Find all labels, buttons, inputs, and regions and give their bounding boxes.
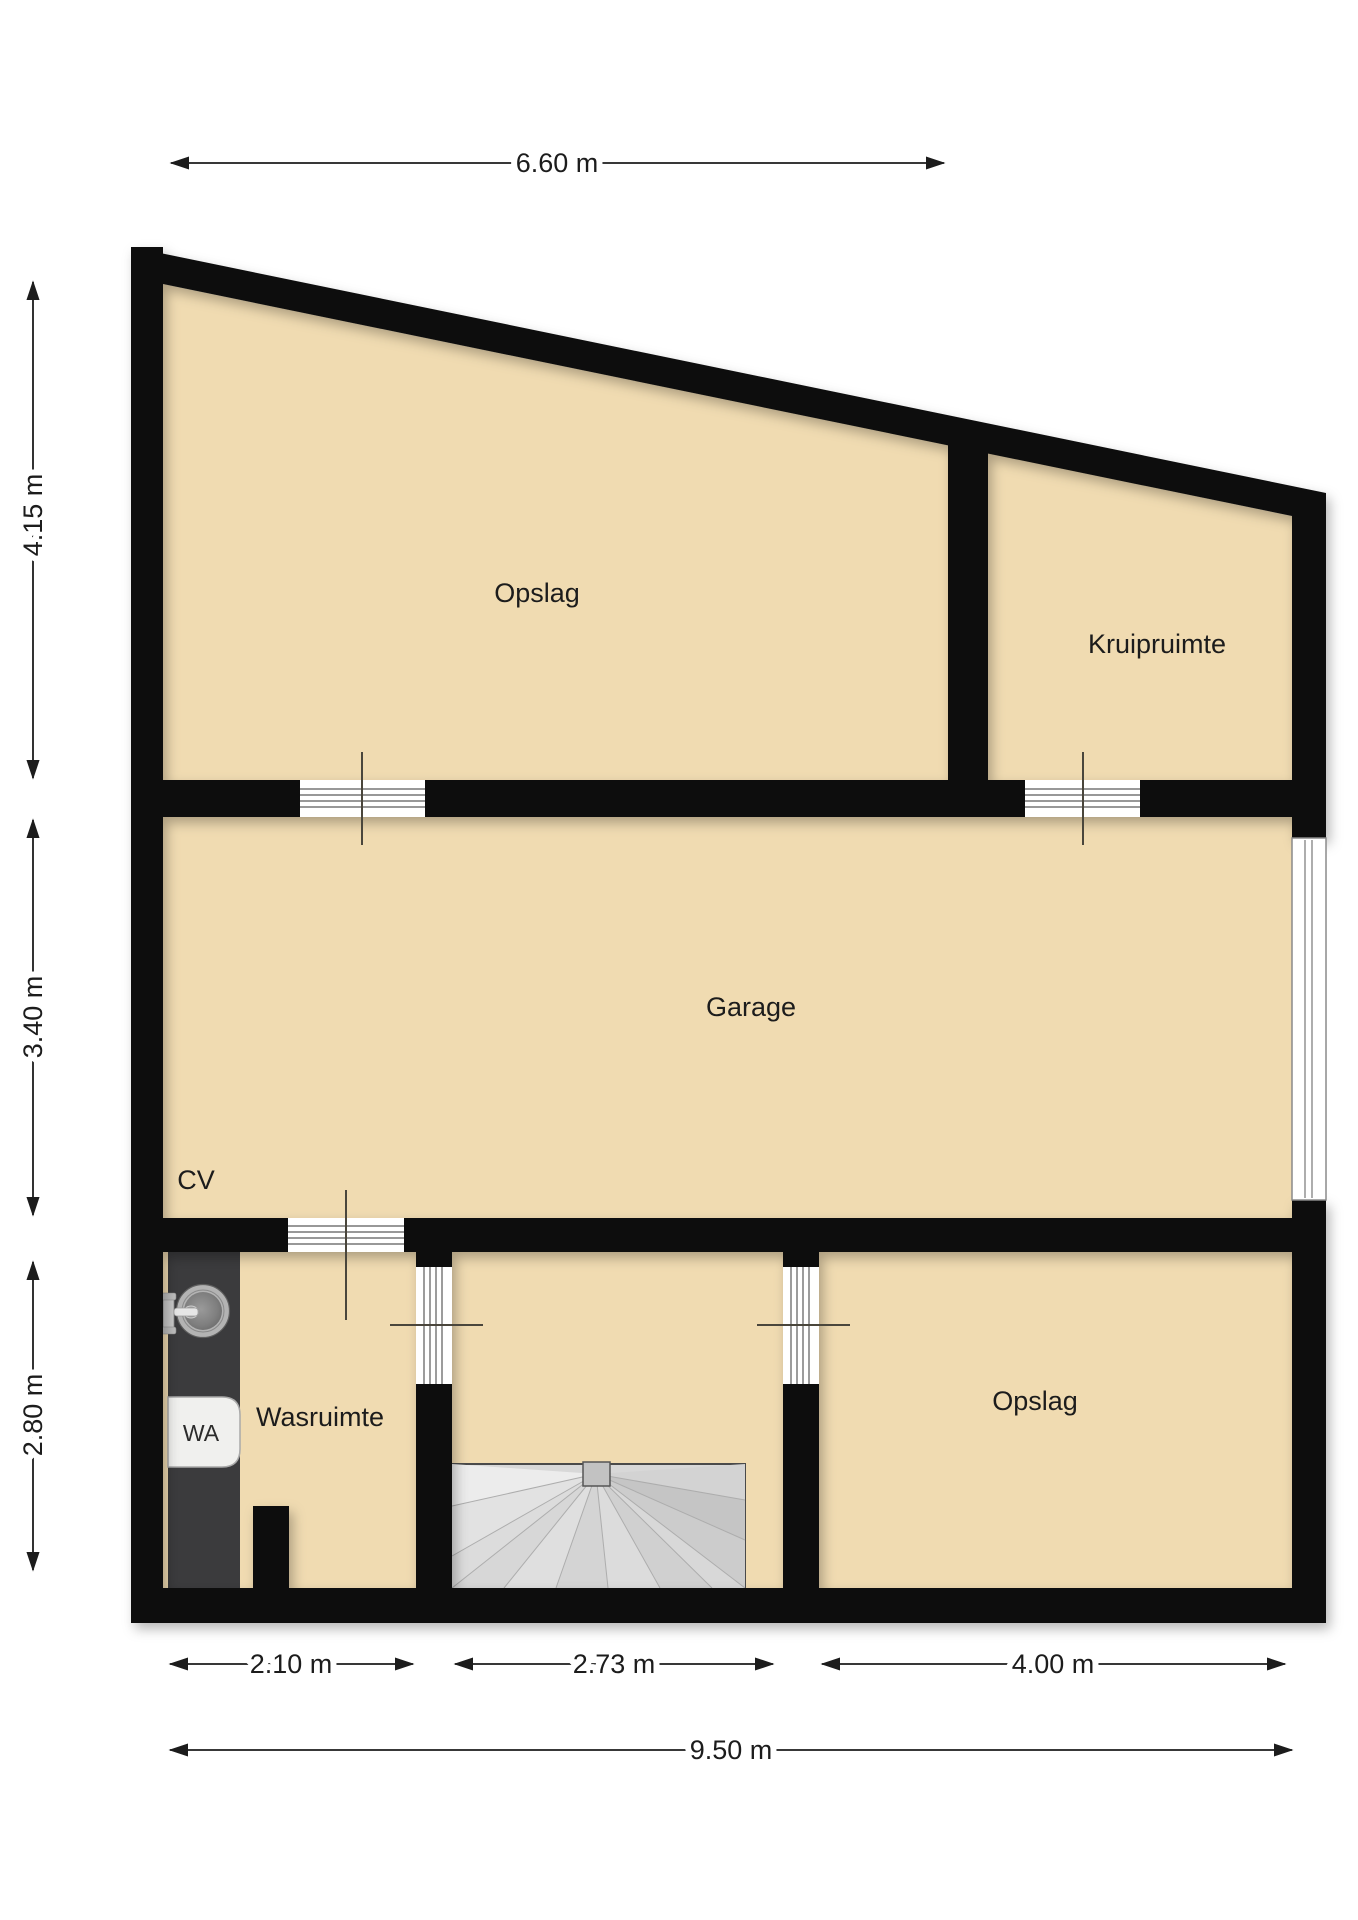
wall-right-upper bbox=[1292, 493, 1326, 838]
dim-left-middle: 3.40 m bbox=[18, 820, 48, 1215]
wall-opslag-kruipruimte bbox=[948, 430, 988, 782]
dim-top-width: 6.60 m bbox=[171, 148, 944, 178]
opslag-bottom-floor bbox=[819, 1250, 1292, 1590]
garage-floor bbox=[163, 810, 1292, 1255]
dim-left-top-label: 4.15 m bbox=[18, 474, 48, 557]
cv-label: CV bbox=[177, 1165, 215, 1195]
kruipruimte-label: Kruipruimte bbox=[1088, 629, 1226, 659]
opslag-top-label: Opslag bbox=[494, 578, 580, 608]
opslag-bottom-label: Opslag bbox=[992, 1386, 1078, 1416]
dim-bottom-middle: 2.73 m bbox=[455, 1649, 773, 1679]
dim-bottom-total-label: 9.50 m bbox=[690, 1735, 773, 1765]
dim-left-bottom: 2.80 m bbox=[18, 1262, 48, 1570]
dim-left-middle-label: 3.40 m bbox=[18, 976, 48, 1059]
stairs-newel bbox=[583, 1462, 610, 1486]
washer-label: WA bbox=[183, 1420, 220, 1446]
wasruimte-counter: WA bbox=[160, 1250, 240, 1588]
dim-bottom-left: 2.10 m bbox=[170, 1649, 413, 1679]
stairs bbox=[452, 1462, 745, 1588]
dim-bottom-right: 4.00 m bbox=[822, 1649, 1285, 1679]
wall-left bbox=[131, 247, 163, 1623]
dim-bottom-left-label: 2.10 m bbox=[250, 1649, 333, 1679]
wall-right-lower bbox=[1292, 1200, 1326, 1623]
dim-bottom-total: 9.50 m bbox=[170, 1735, 1292, 1765]
dim-bottom-middle-label: 2.73 m bbox=[573, 1649, 656, 1679]
garage-window bbox=[1292, 838, 1326, 1200]
dim-left-top: 4.15 m bbox=[18, 282, 48, 778]
wall-bottom bbox=[131, 1588, 1326, 1623]
floorplan-canvas: WA bbox=[0, 0, 1358, 1920]
dim-left-bottom-label: 2.80 m bbox=[18, 1374, 48, 1457]
wasruimte-label: Wasruimte bbox=[256, 1402, 384, 1432]
dim-bottom-right-label: 4.00 m bbox=[1012, 1649, 1095, 1679]
garage-label: Garage bbox=[706, 992, 796, 1022]
dim-top-width-label: 6.60 m bbox=[516, 148, 599, 178]
wall-stub bbox=[253, 1506, 289, 1588]
